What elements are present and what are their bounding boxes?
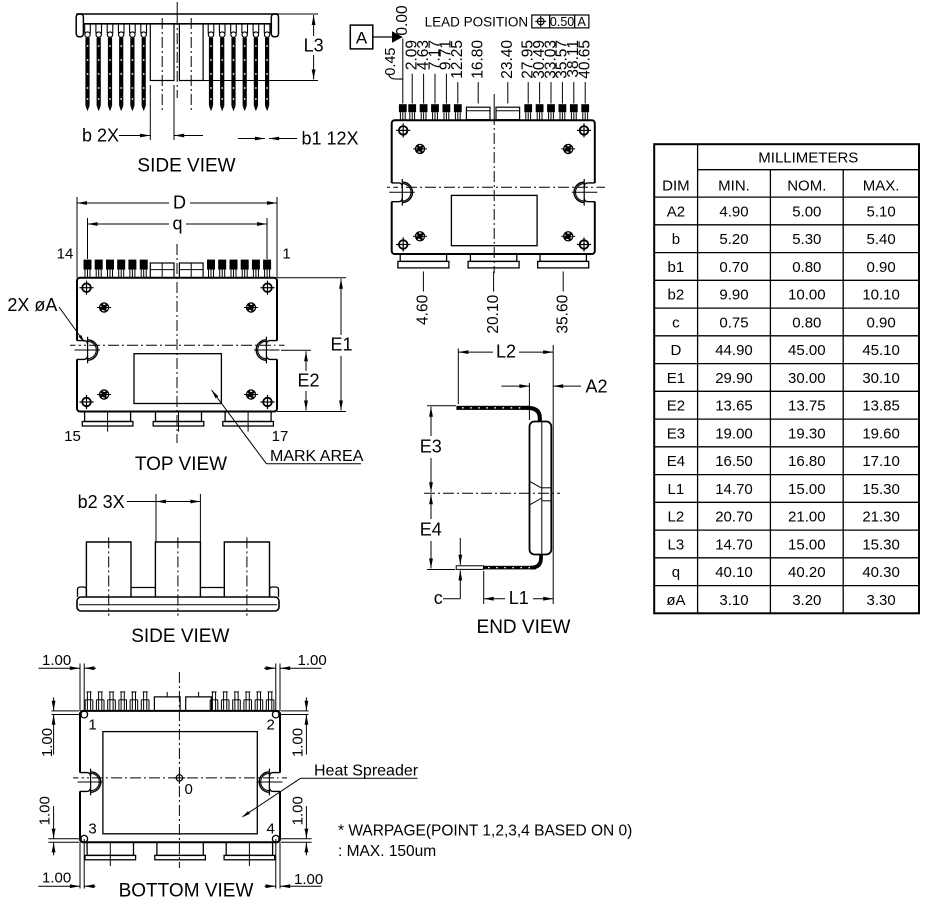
svg-text:40.10: 40.10: [715, 564, 753, 581]
svg-text:19.60: 19.60: [862, 425, 900, 442]
svg-text:E2: E2: [297, 371, 319, 391]
svg-text:15.00: 15.00: [788, 481, 826, 498]
svg-text:1.00: 1.00: [39, 728, 56, 757]
svg-text:0.45: 0.45: [383, 48, 399, 76]
svg-text:2X øA: 2X øA: [7, 295, 57, 315]
svg-text:L2: L2: [668, 509, 685, 526]
svg-text:14.70: 14.70: [715, 536, 753, 553]
svg-text:15: 15: [64, 428, 81, 445]
svg-text:15.30: 15.30: [862, 536, 900, 553]
svg-text:13.85: 13.85: [862, 398, 900, 415]
svg-text:45.10: 45.10: [862, 342, 900, 359]
svg-text:b1: b1: [668, 259, 685, 276]
svg-text:4.60: 4.60: [415, 294, 432, 325]
svg-text:19.00: 19.00: [715, 425, 753, 442]
svg-text:E3: E3: [420, 437, 442, 457]
svg-text:L3: L3: [668, 536, 685, 553]
svg-text:40.65: 40.65: [577, 40, 594, 79]
svg-text:21.00: 21.00: [788, 509, 826, 526]
svg-text:30.10: 30.10: [862, 370, 900, 387]
svg-text:DIM: DIM: [662, 178, 690, 195]
svg-text:1.00: 1.00: [298, 652, 327, 669]
svg-text:q: q: [172, 214, 182, 234]
svg-text:Heat Spreader: Heat Spreader: [314, 763, 419, 780]
svg-text:13.65: 13.65: [715, 398, 753, 415]
svg-text:MARK AREA: MARK AREA: [270, 448, 364, 465]
svg-text:c: c: [672, 314, 680, 331]
svg-text:3.20: 3.20: [792, 592, 821, 609]
svg-text:0: 0: [185, 781, 193, 798]
svg-text:5.00: 5.00: [792, 203, 821, 220]
svg-text:16.80: 16.80: [470, 40, 487, 79]
svg-text:14: 14: [57, 246, 74, 263]
svg-text:15.30: 15.30: [862, 481, 900, 498]
svg-text:A: A: [356, 29, 368, 48]
svg-text:4.90: 4.90: [719, 203, 748, 220]
svg-text:SIDE VIEW: SIDE VIEW: [131, 626, 229, 647]
svg-text:LEAD POSITION: LEAD POSITION: [425, 14, 529, 29]
svg-text:29.90: 29.90: [715, 370, 753, 387]
svg-text:19.30: 19.30: [788, 425, 826, 442]
svg-text:E4: E4: [420, 520, 442, 540]
svg-text:5.30: 5.30: [792, 231, 821, 248]
svg-text:40.30: 40.30: [862, 564, 900, 581]
svg-text:15.00: 15.00: [788, 536, 826, 553]
svg-text:MIN.: MIN.: [718, 178, 750, 195]
svg-text:4: 4: [267, 821, 275, 838]
svg-text:D: D: [173, 193, 186, 213]
svg-text:A2: A2: [667, 203, 685, 220]
svg-text:A2: A2: [586, 376, 608, 396]
svg-text:øA: øA: [666, 592, 685, 609]
svg-text:L3: L3: [304, 36, 324, 56]
svg-text:MILLIMETERS: MILLIMETERS: [758, 150, 858, 167]
svg-text:TOP VIEW: TOP VIEW: [135, 454, 227, 475]
svg-text:21.30: 21.30: [862, 509, 900, 526]
svg-text:17.10: 17.10: [862, 453, 900, 470]
svg-text:b2: b2: [668, 287, 685, 304]
svg-text:16.80: 16.80: [788, 453, 826, 470]
svg-text:3.30: 3.30: [866, 592, 895, 609]
svg-text:1.00: 1.00: [294, 871, 323, 888]
svg-text:20.10: 20.10: [485, 294, 502, 333]
svg-text:c: c: [434, 588, 443, 608]
svg-text:1: 1: [88, 717, 96, 734]
svg-text:23.40: 23.40: [499, 40, 516, 79]
svg-text:E1: E1: [667, 370, 685, 387]
svg-text:L1: L1: [668, 481, 685, 498]
svg-text:3.10: 3.10: [719, 592, 748, 609]
svg-text:q: q: [672, 564, 680, 581]
svg-text:14.70: 14.70: [715, 481, 753, 498]
svg-text:A: A: [578, 15, 587, 29]
svg-text:b2 3X: b2 3X: [78, 492, 125, 512]
svg-text:E3: E3: [667, 425, 685, 442]
svg-text:: MAX. 150um: : MAX. 150um: [338, 843, 436, 860]
svg-text:10.00: 10.00: [788, 287, 826, 304]
svg-text:16.50: 16.50: [715, 453, 753, 470]
svg-text:E2: E2: [667, 398, 685, 415]
svg-text:NOM.: NOM.: [787, 178, 826, 195]
svg-text:1.00: 1.00: [289, 796, 306, 825]
svg-text:12.25: 12.25: [449, 40, 466, 79]
svg-text:L2: L2: [496, 342, 516, 362]
svg-text:D: D: [670, 342, 681, 359]
svg-text:E1: E1: [330, 335, 352, 355]
svg-text:b 2X: b 2X: [82, 126, 119, 146]
svg-text:0.90: 0.90: [866, 314, 895, 331]
svg-text:3: 3: [88, 821, 96, 838]
svg-text:2: 2: [267, 717, 275, 734]
svg-text:MAX.: MAX.: [863, 178, 900, 195]
svg-text:0.70: 0.70: [719, 259, 748, 276]
svg-text:9.90: 9.90: [719, 287, 748, 304]
svg-text:E4: E4: [667, 453, 685, 470]
svg-text:0.80: 0.80: [792, 259, 821, 276]
svg-text:17: 17: [272, 428, 289, 445]
svg-text:13.75: 13.75: [788, 398, 826, 415]
svg-text:40.20: 40.20: [788, 564, 826, 581]
svg-text:45.00: 45.00: [788, 342, 826, 359]
svg-text:0.50: 0.50: [550, 15, 574, 29]
svg-text:44.90: 44.90: [715, 342, 753, 359]
svg-text:10.10: 10.10: [862, 287, 900, 304]
svg-text:0.80: 0.80: [792, 314, 821, 331]
svg-text:BOTTOM VIEW: BOTTOM VIEW: [119, 881, 254, 902]
svg-text:SIDE VIEW: SIDE VIEW: [137, 156, 235, 177]
svg-text:0.75: 0.75: [719, 314, 748, 331]
svg-text:5.10: 5.10: [866, 203, 895, 220]
svg-text:0.00: 0.00: [394, 5, 411, 36]
svg-text:1: 1: [282, 246, 290, 263]
svg-text:5.40: 5.40: [866, 231, 895, 248]
svg-text:1.00: 1.00: [42, 870, 71, 887]
svg-text:35.60: 35.60: [555, 294, 572, 333]
svg-text:* WARPAGE(POINT 1,2,3,4 BASED: * WARPAGE(POINT 1,2,3,4 BASED ON 0): [338, 823, 632, 840]
svg-text:0.90: 0.90: [866, 259, 895, 276]
svg-text:1.00: 1.00: [289, 728, 306, 757]
svg-text:1.00: 1.00: [42, 652, 71, 669]
svg-text:1.00: 1.00: [37, 796, 54, 825]
svg-text:b1 12X: b1 12X: [302, 129, 359, 149]
svg-text:b: b: [672, 231, 680, 248]
svg-text:20.70: 20.70: [715, 509, 753, 526]
svg-text:L1: L1: [509, 588, 529, 608]
svg-text:30.00: 30.00: [788, 370, 826, 387]
svg-text:END VIEW: END VIEW: [477, 617, 571, 638]
svg-text:5.20: 5.20: [719, 231, 748, 248]
